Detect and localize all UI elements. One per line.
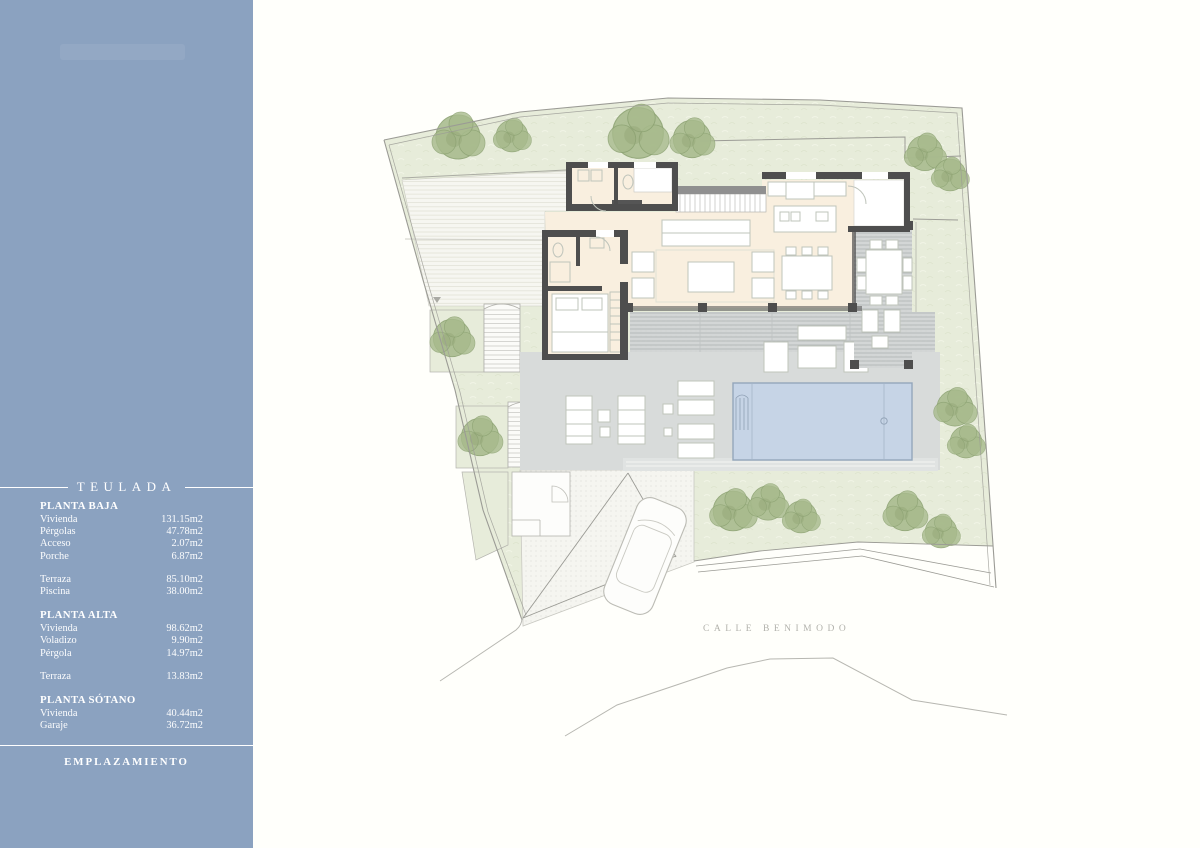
area-value: 47.78m2 [166, 526, 203, 538]
area-group: Terraza85.10m2 Piscina38.00m2 [40, 574, 203, 598]
area-value: 40.44m2 [166, 708, 203, 720]
area-label: Acceso [40, 538, 71, 550]
area-label: Vivienda [40, 623, 77, 635]
section-title: PLANTA ALTA [40, 609, 203, 622]
dining-set [782, 247, 832, 299]
area-value: 9.90m2 [172, 635, 203, 647]
wc-room [634, 168, 672, 192]
porch [854, 180, 904, 226]
table-row: Terraza13.83m2 [40, 671, 203, 683]
area-label: Porche [40, 551, 69, 563]
table-row: Pérgola14.97m2 [40, 648, 203, 660]
side-patio [850, 221, 913, 369]
section-title: PLANTA BAJA [40, 500, 203, 513]
drawing-title: EMPLAZAMIENTO [0, 756, 253, 768]
table-row: Porche6.87m2 [40, 551, 203, 563]
area-label: Garaje [40, 720, 68, 732]
area-value: 85.10m2 [166, 574, 203, 586]
table-row: Vivienda131.15m2 [40, 514, 203, 526]
title-rule-left [0, 487, 68, 488]
kitchen-island [774, 206, 836, 232]
area-value: 131.15m2 [161, 514, 203, 526]
hall-closet [786, 182, 814, 199]
footer-rule [0, 745, 253, 746]
area-label: Pérgola [40, 648, 72, 660]
page-title: TEULADA [68, 479, 186, 495]
table-row: Pérgolas47.78m2 [40, 526, 203, 538]
pool [733, 383, 912, 460]
area-table: PLANTA BAJA Vivienda131.15m2 Pérgolas47.… [40, 500, 203, 743]
info-sidebar: TEULADA PLANTA BAJA Vivienda131.15m2 Pér… [0, 0, 253, 848]
section-title: PLANTA SÓTANO [40, 694, 203, 707]
area-value: 2.07m2 [172, 538, 203, 550]
area-group: Vivienda131.15m2 Pérgolas47.78m2 Acceso2… [40, 514, 203, 563]
street-label: CALLE BENIMODO [703, 624, 850, 634]
area-label: Vivienda [40, 514, 77, 526]
internal-stairs [672, 186, 766, 212]
section-planta-sotano: PLANTA SÓTANO Vivienda40.44m2 Garaje36.7… [40, 694, 203, 732]
area-value: 36.72m2 [166, 720, 203, 732]
area-label: Piscina [40, 586, 70, 598]
area-group: Vivienda98.62m2 Voladizo9.90m2 Pérgola14… [40, 623, 203, 660]
area-label: Terraza [40, 671, 71, 683]
area-value: 38.00m2 [166, 586, 203, 598]
area-value: 6.87m2 [172, 551, 203, 563]
area-label: Vivienda [40, 708, 77, 720]
area-label: Terraza [40, 574, 71, 586]
area-value: 98.62m2 [166, 623, 203, 635]
project-title-row: TEULADA [0, 479, 253, 495]
street-centerline [565, 658, 1007, 736]
table-row: Vivienda40.44m2 [40, 708, 203, 720]
table-row: Garaje36.72m2 [40, 720, 203, 732]
section-planta-baja: PLANTA BAJA Vivienda131.15m2 Pérgolas47.… [40, 500, 203, 598]
area-label: Pérgolas [40, 526, 76, 538]
table-row: Terraza85.10m2 [40, 574, 203, 586]
area-label: Voladizo [40, 635, 77, 647]
area-group: Terraza13.83m2 [40, 671, 203, 683]
section-planta-alta: PLANTA ALTA Vivienda98.62m2 Voladizo9.90… [40, 609, 203, 683]
area-value: 14.97m2 [166, 648, 203, 660]
table-row: Voladizo9.90m2 [40, 635, 203, 647]
street: CALLE BENIMODO [440, 618, 1007, 736]
title-rule-right [185, 487, 253, 488]
area-value: 13.83m2 [166, 671, 203, 683]
tree-icon [432, 112, 485, 159]
entrance-court [512, 472, 570, 536]
watermark-logo [60, 44, 185, 60]
table-row: Vivienda98.62m2 [40, 623, 203, 635]
street-curb-left [440, 618, 522, 681]
table-row: Piscina38.00m2 [40, 586, 203, 598]
area-group: Vivienda40.44m2 Garaje36.72m2 [40, 708, 203, 732]
table-row: Acceso2.07m2 [40, 538, 203, 550]
